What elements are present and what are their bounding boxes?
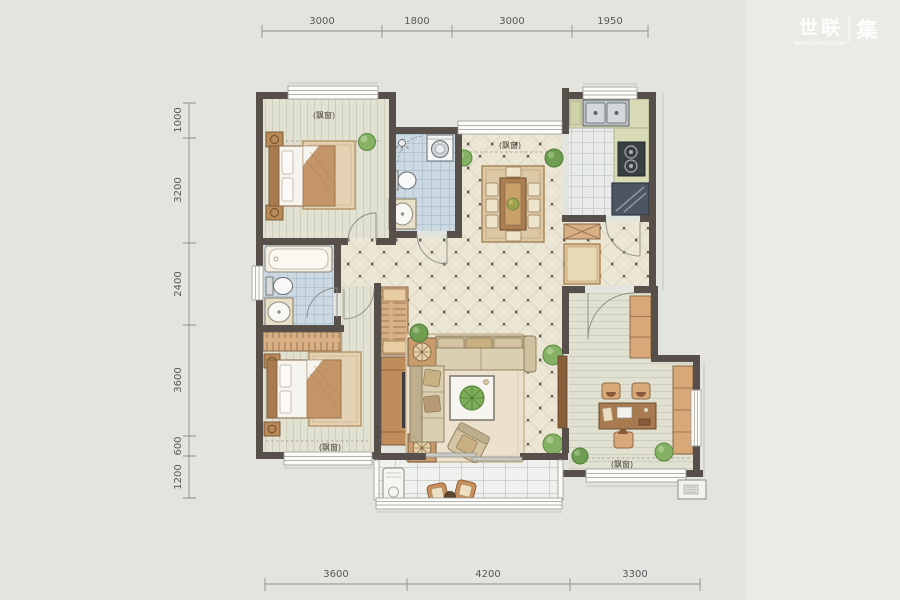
nightstand xyxy=(266,205,283,220)
coffee-table xyxy=(450,376,494,420)
wall xyxy=(562,215,606,222)
wall xyxy=(256,452,284,459)
kitchen-sink xyxy=(583,100,629,126)
bay-window xyxy=(586,469,686,482)
wall xyxy=(256,325,344,332)
ac-outdoor-unit xyxy=(678,480,706,499)
wall xyxy=(374,283,381,459)
dim-label: 3300 xyxy=(622,569,647,580)
dim-label: 1200 xyxy=(173,464,184,489)
wall xyxy=(562,470,588,477)
plant xyxy=(410,324,428,342)
wall xyxy=(389,92,396,238)
wall xyxy=(389,127,458,134)
dim-label: 2400 xyxy=(173,271,184,296)
dim-label: 3600 xyxy=(323,569,348,580)
dining-chair xyxy=(528,183,540,196)
plant xyxy=(543,434,563,454)
double-bed xyxy=(269,146,335,206)
wall xyxy=(634,286,658,293)
desk xyxy=(599,403,656,429)
dim-label: 1800 xyxy=(404,16,429,27)
wall xyxy=(649,92,656,293)
bathroom-sink xyxy=(265,298,293,326)
nightstand xyxy=(264,422,280,436)
toilet xyxy=(266,277,293,295)
bay-window xyxy=(284,452,372,465)
wall xyxy=(334,245,341,293)
wall xyxy=(640,215,649,222)
sliding-door-panel xyxy=(558,356,567,428)
dining-chair xyxy=(506,167,521,177)
dim-label: 3600 xyxy=(173,367,184,392)
double-bed xyxy=(267,360,341,418)
dining-chair xyxy=(486,215,498,228)
dim-label: 1000 xyxy=(173,107,184,132)
bathtub xyxy=(265,246,332,272)
kitchen-window xyxy=(583,87,637,99)
dining-chair xyxy=(486,199,498,212)
wall xyxy=(562,428,569,453)
wall xyxy=(520,453,568,460)
wall xyxy=(374,453,426,460)
watermark-mark: 集 xyxy=(856,18,879,42)
wall xyxy=(562,286,585,293)
background-right-band xyxy=(745,0,900,600)
water-heater xyxy=(383,468,404,501)
wall xyxy=(455,127,462,238)
dim-label: 1950 xyxy=(597,16,622,27)
watermark-brand: 世联 xyxy=(799,17,843,39)
wall xyxy=(256,238,348,245)
wall xyxy=(389,231,417,238)
nightstand xyxy=(266,132,283,147)
dining-chair xyxy=(528,199,540,212)
bookshelf xyxy=(630,296,651,358)
dining-chair xyxy=(528,215,540,228)
bay-window xyxy=(458,121,562,134)
entry xyxy=(564,224,600,284)
side-table xyxy=(408,338,436,366)
desk-chair xyxy=(614,432,633,448)
bay-window-label: (飘窗) xyxy=(611,459,633,469)
plant xyxy=(572,448,588,464)
wall xyxy=(651,293,658,359)
dim-label: 3000 xyxy=(499,16,524,27)
study-window xyxy=(691,390,701,446)
dim-label: 3200 xyxy=(173,177,184,202)
wall xyxy=(376,238,396,245)
table-centerpiece xyxy=(507,198,519,210)
dining-chair xyxy=(486,183,498,196)
dim-label: 4200 xyxy=(475,569,500,580)
fridge xyxy=(612,183,649,215)
washing-machine xyxy=(427,135,453,161)
cooktop xyxy=(618,142,645,176)
wall xyxy=(686,470,703,477)
plant xyxy=(655,443,673,461)
floor-plan-screenshot: (飘窗) (飘窗) (飘窗) (飘窗) 3000 1800 3000 1950 … xyxy=(0,0,900,600)
shoe-cabinet xyxy=(564,224,600,239)
bathroom-window xyxy=(252,266,263,300)
dim-label: 600 xyxy=(173,436,184,455)
dim-label: 3000 xyxy=(309,16,334,27)
wall xyxy=(562,293,569,354)
watermark-site: worldunionji.com xyxy=(794,40,845,47)
bay-window xyxy=(288,86,378,99)
plant xyxy=(545,149,563,167)
plant xyxy=(359,134,376,151)
bay-window-label: (飘窗) xyxy=(313,110,335,120)
floor-plan-svg: (飘窗) (飘窗) (飘窗) (飘窗) 3000 1800 3000 1950 … xyxy=(0,0,900,600)
storage-strip xyxy=(381,287,408,445)
bookshelf xyxy=(673,366,693,454)
dining-chair xyxy=(506,231,521,241)
bay-window-label: (飘窗) xyxy=(319,442,341,452)
wall xyxy=(693,362,700,392)
wall xyxy=(651,355,700,362)
wall xyxy=(256,298,263,459)
bay-window-label: (飘窗) xyxy=(499,140,521,150)
wall xyxy=(562,92,583,99)
